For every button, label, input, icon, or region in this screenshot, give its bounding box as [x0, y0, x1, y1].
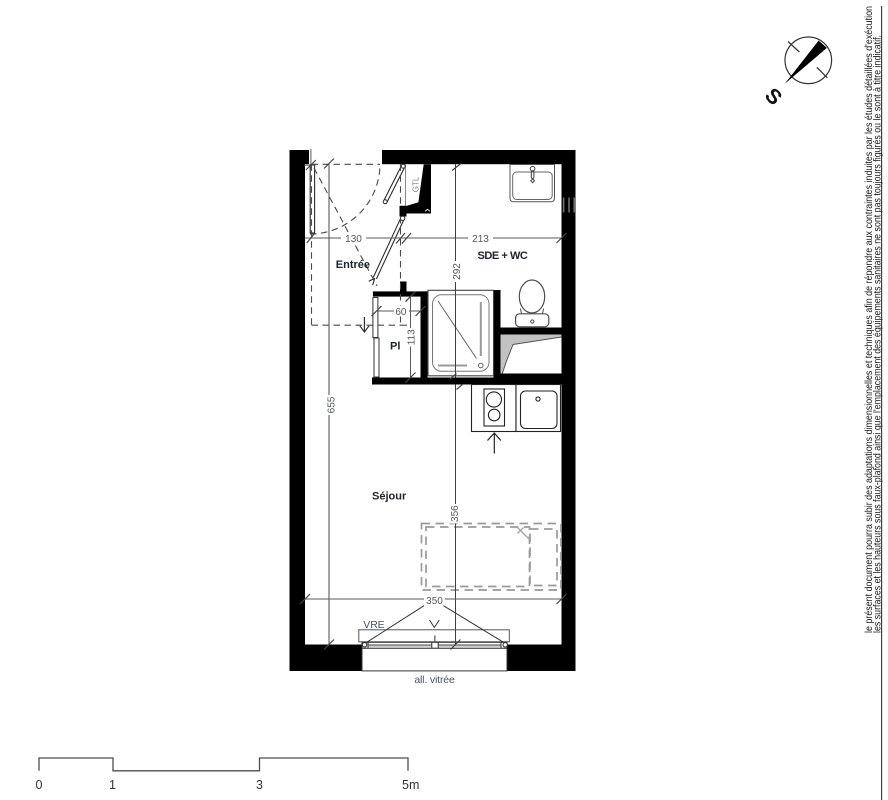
svg-text:SDE + WC: SDE + WC: [478, 250, 528, 262]
svg-text:VRE: VRE: [363, 619, 384, 631]
svg-text:3: 3: [256, 778, 263, 792]
svg-text:GTL: GTL: [411, 176, 420, 192]
svg-text:1: 1: [109, 778, 116, 792]
svg-text:Pl: Pl: [390, 341, 400, 353]
svg-text:356: 356: [450, 505, 461, 522]
svg-text:5m: 5m: [402, 778, 419, 792]
svg-text:292: 292: [452, 263, 463, 280]
svg-text:all. vitrée: all. vitrée: [414, 674, 455, 686]
svg-text:350: 350: [426, 596, 443, 607]
svg-text:60: 60: [395, 307, 407, 318]
svg-text:Entrée: Entrée: [336, 259, 370, 271]
svg-text:130: 130: [345, 234, 362, 245]
svg-text:Séjour: Séjour: [372, 491, 407, 503]
svg-text:113: 113: [407, 329, 418, 345]
svg-text:les surfaces et les hauteurs s: les surfaces et les hauteurs sous faux-p…: [873, 35, 884, 633]
svg-text:0: 0: [36, 778, 43, 792]
svg-text:655: 655: [326, 396, 337, 413]
svg-text:213: 213: [472, 234, 489, 245]
